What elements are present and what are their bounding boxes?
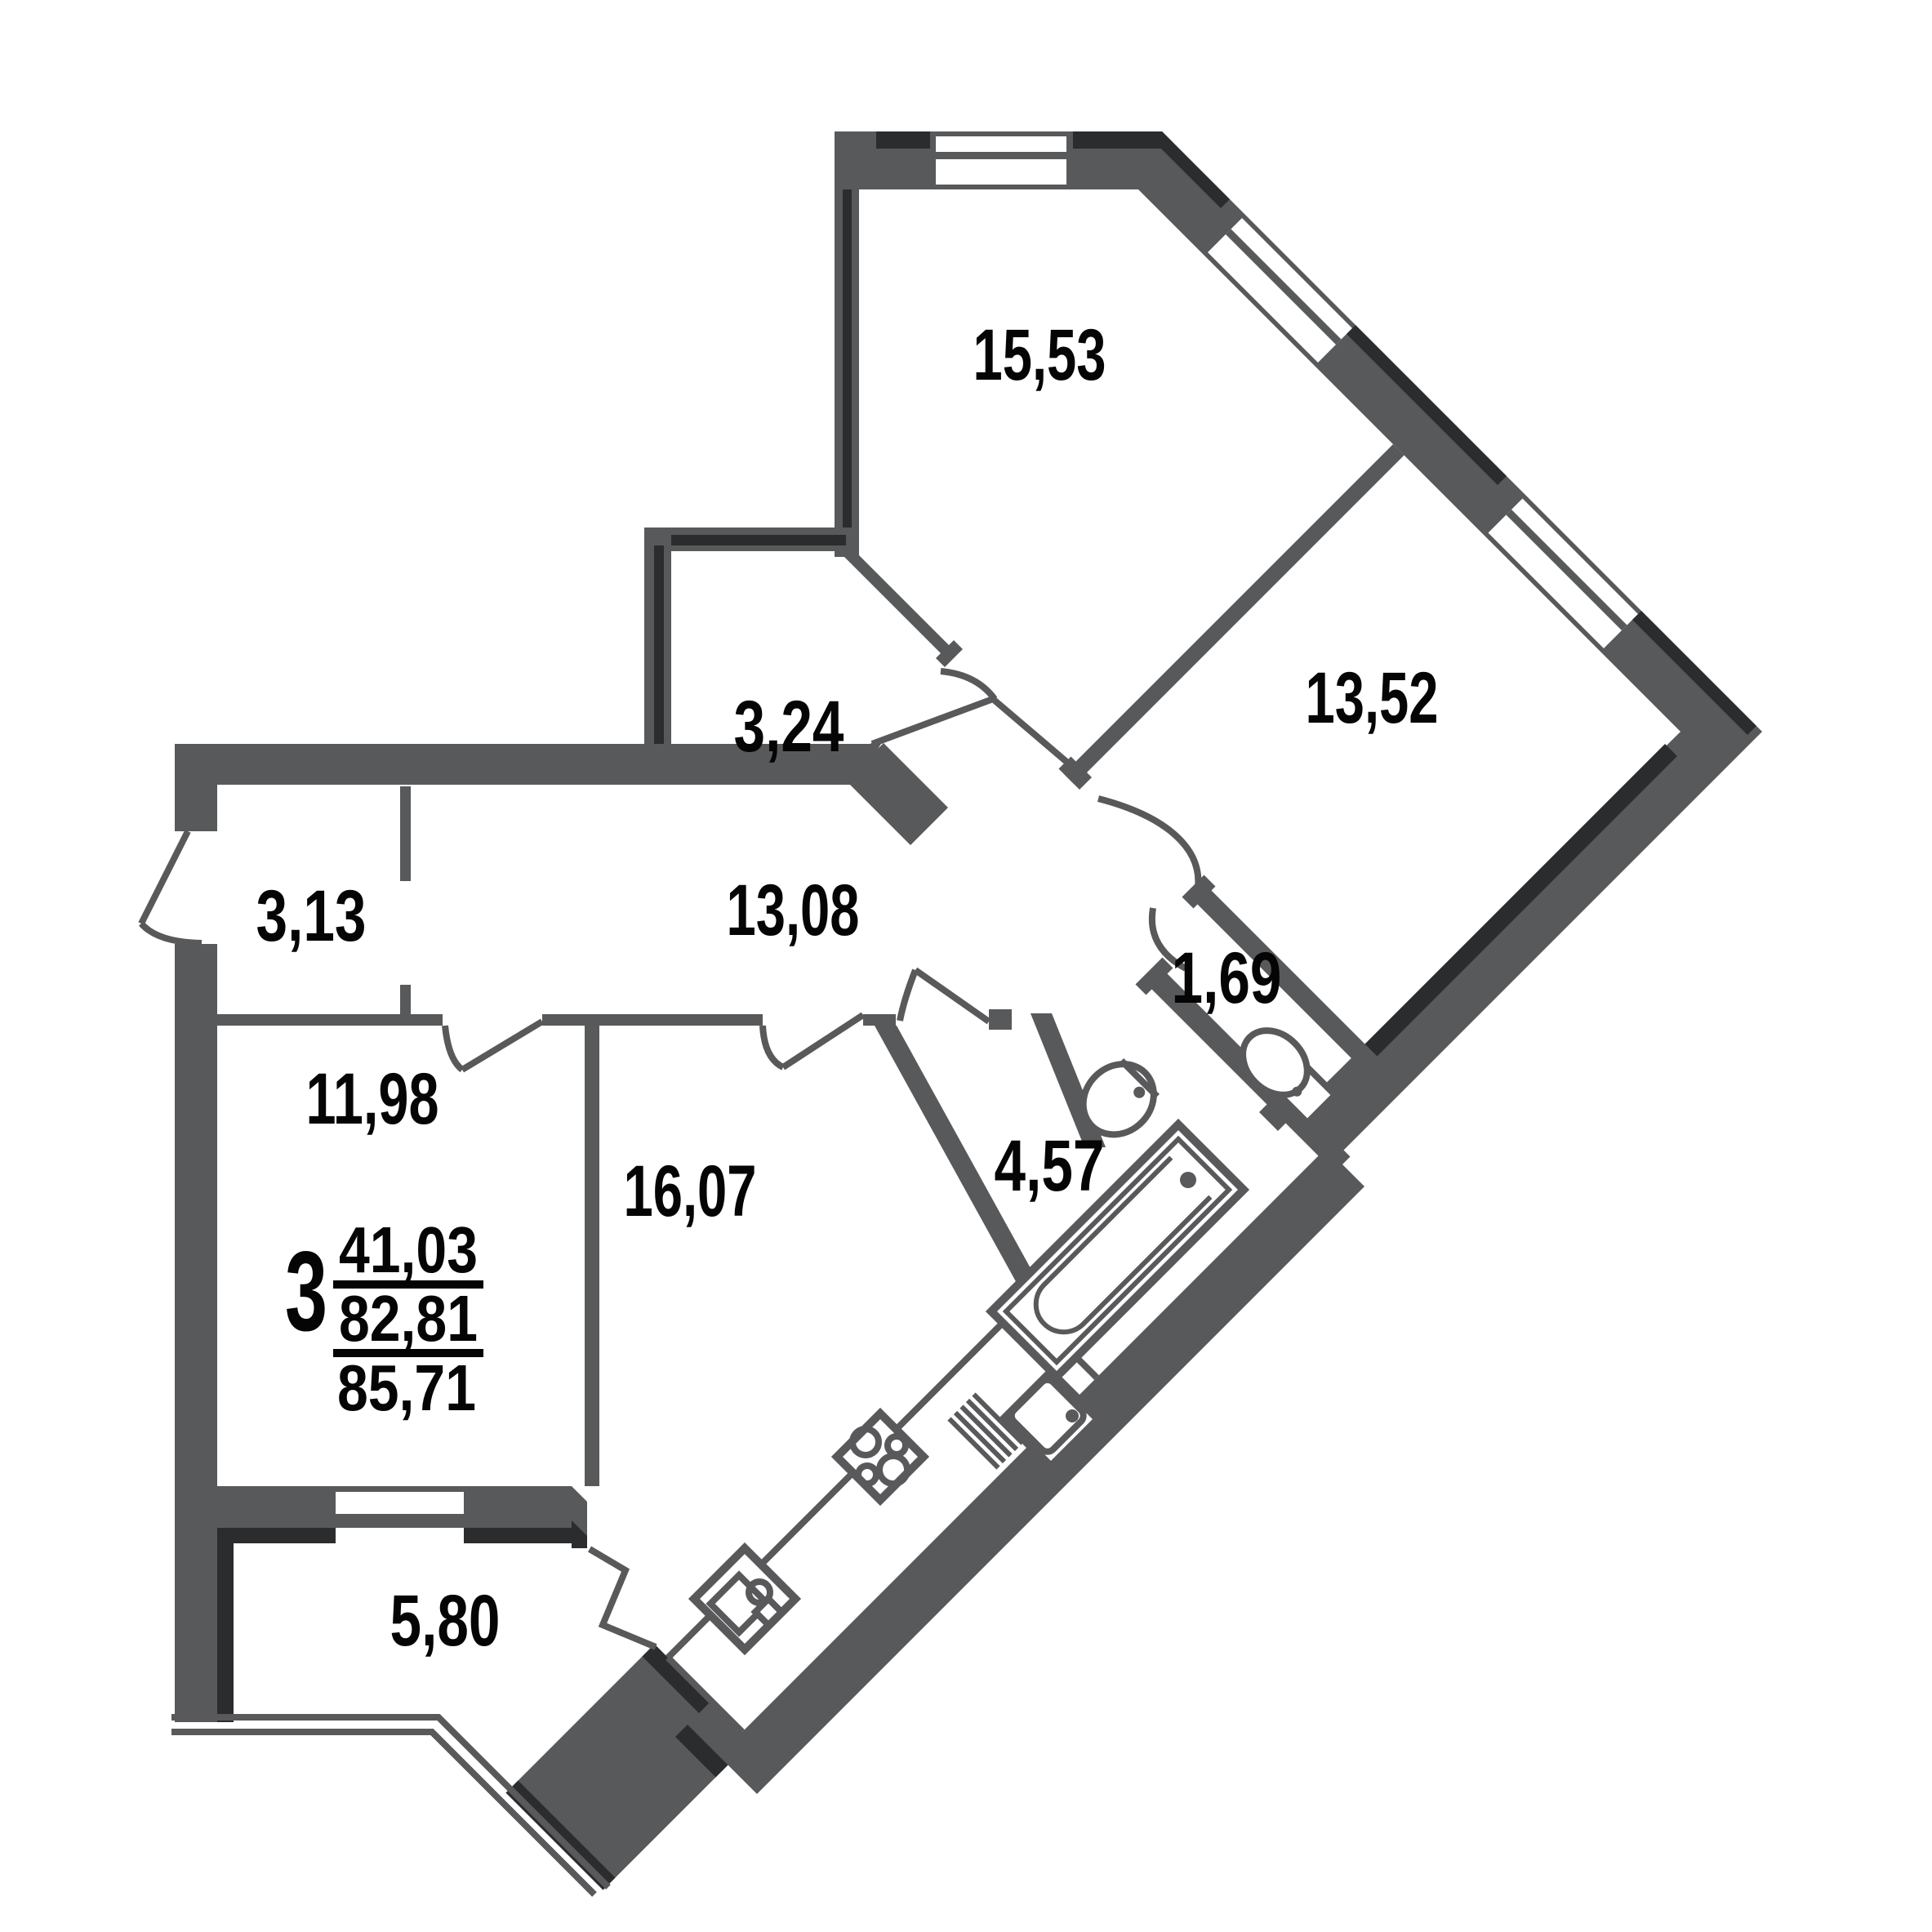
svg-text:1,69: 1,69 xyxy=(1172,937,1282,1018)
svg-text:11,98: 11,98 xyxy=(306,1057,439,1139)
svg-text:82,81: 82,81 xyxy=(339,1282,478,1355)
svg-text:13,08: 13,08 xyxy=(727,869,860,950)
svg-text:85,71: 85,71 xyxy=(337,1351,476,1424)
svg-text:13,52: 13,52 xyxy=(1306,657,1439,738)
svg-text:16,07: 16,07 xyxy=(624,1150,757,1231)
svg-text:15,53: 15,53 xyxy=(973,314,1106,395)
svg-text:41,03: 41,03 xyxy=(339,1213,478,1286)
svg-text:5,80: 5,80 xyxy=(390,1579,501,1661)
svg-text:3,13: 3,13 xyxy=(256,875,367,956)
svg-text:3: 3 xyxy=(285,1228,327,1355)
svg-text:4,57: 4,57 xyxy=(995,1124,1105,1206)
svg-text:3,24: 3,24 xyxy=(734,685,844,767)
